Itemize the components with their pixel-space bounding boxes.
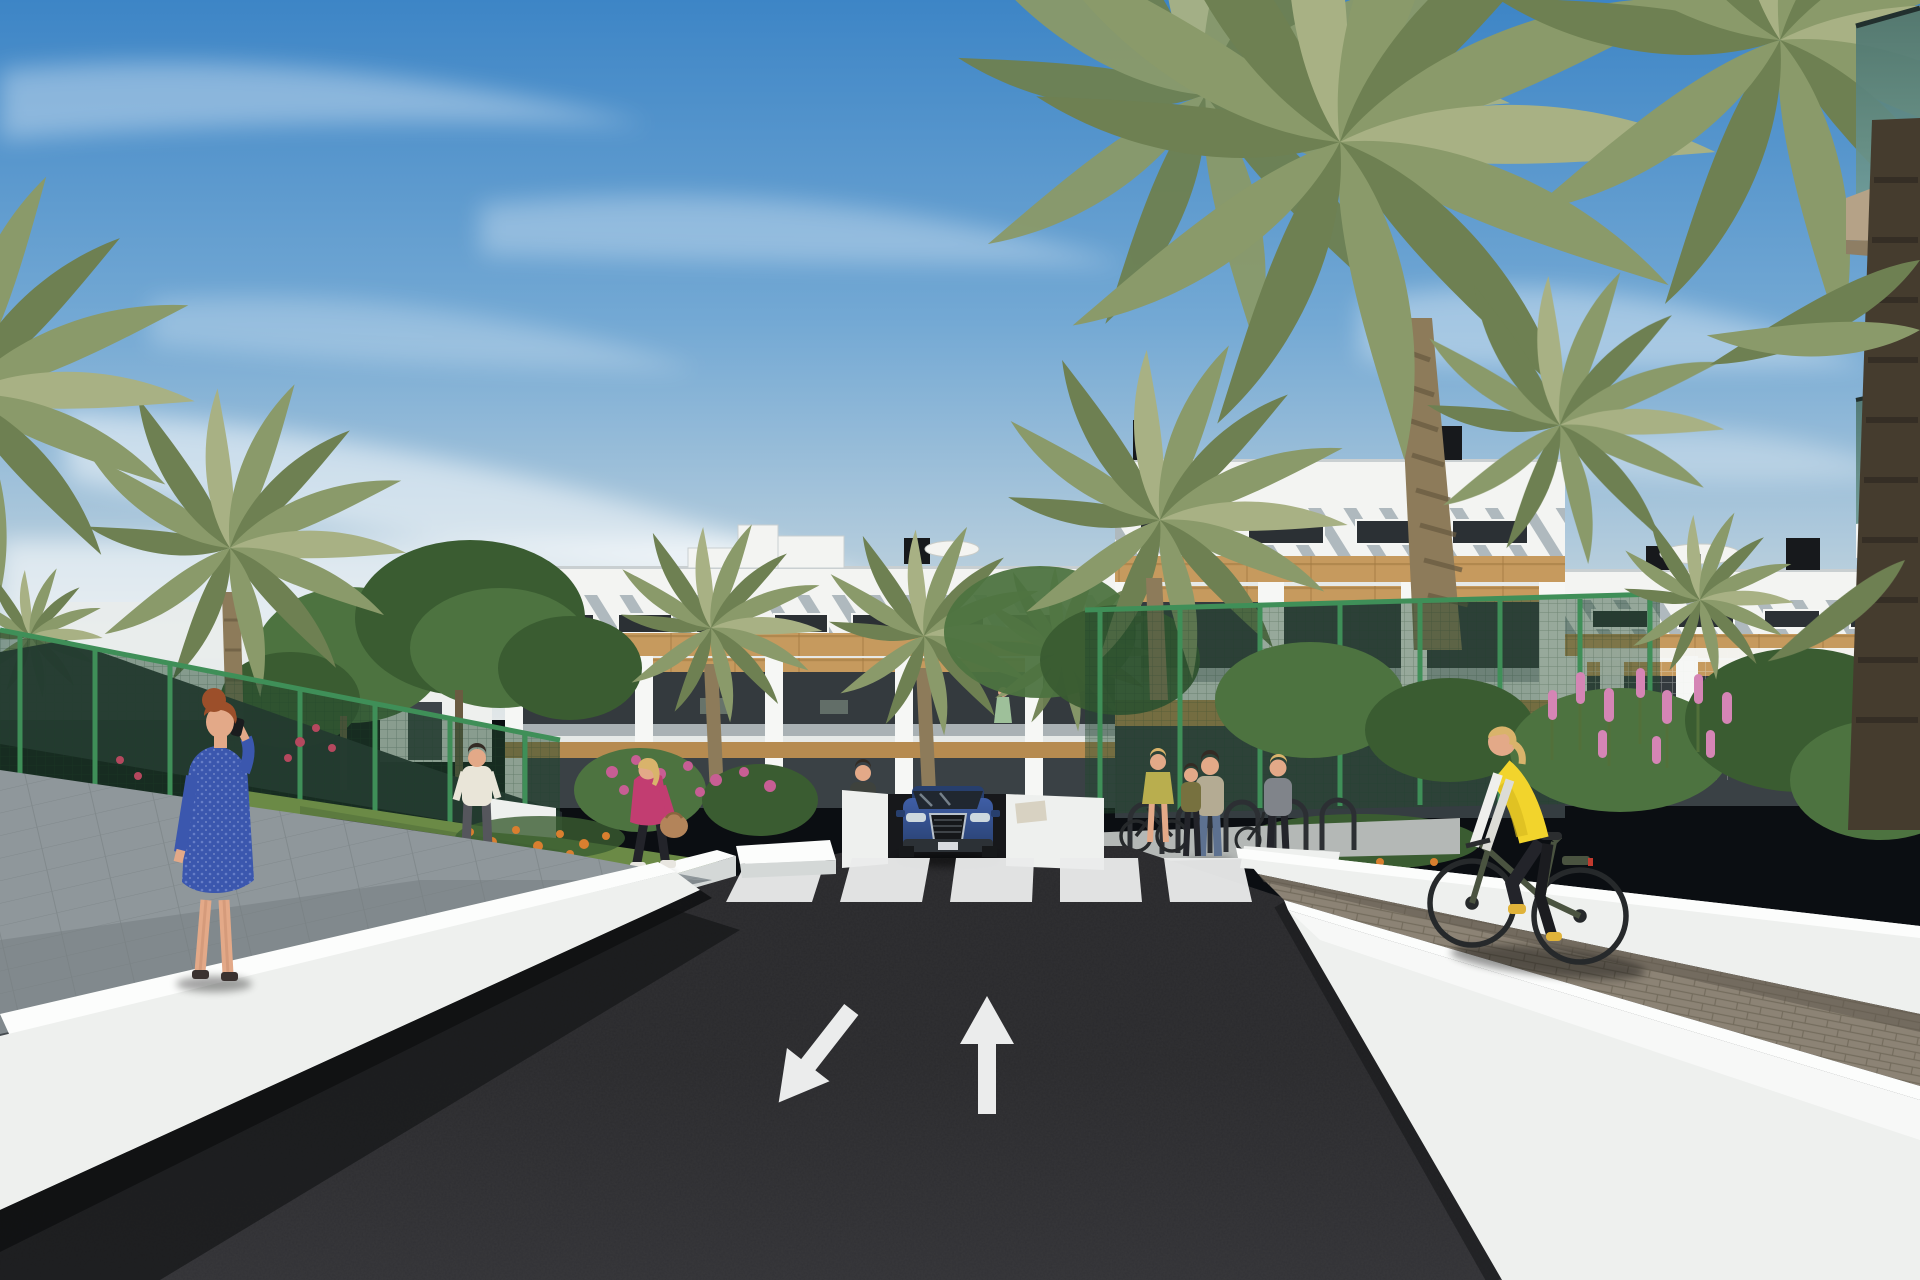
rear-rack (1562, 856, 1590, 865)
car-headlight-left (906, 813, 926, 822)
car-plate (938, 842, 958, 850)
soffit (505, 742, 1117, 758)
handbag (660, 814, 688, 838)
car-grille (930, 814, 966, 840)
car (896, 786, 1000, 867)
ramp-sign (1015, 800, 1047, 823)
car-headlight-right (970, 813, 990, 822)
hair-bun (202, 688, 226, 712)
render-scene (0, 0, 1920, 1280)
ramp-wall-left (842, 790, 888, 868)
architectural-render (0, 0, 1920, 1280)
car-windshield (913, 791, 983, 809)
